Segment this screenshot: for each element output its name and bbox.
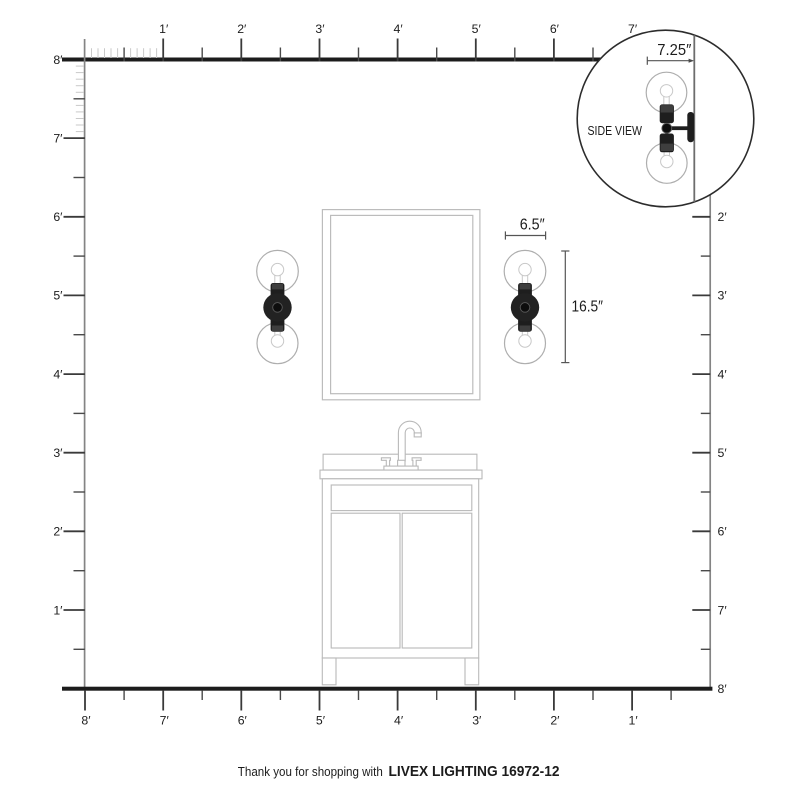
svg-text:7′: 7′ [160,714,170,728]
svg-text:7′: 7′ [628,22,638,36]
svg-text:8′: 8′ [718,682,728,696]
svg-text:2′: 2′ [53,525,63,539]
svg-text:4′: 4′ [394,22,404,36]
svg-text:6.5″: 6.5″ [520,217,545,234]
svg-text:3′: 3′ [472,714,482,728]
svg-text:6′: 6′ [53,210,63,224]
svg-text:16.5″: 16.5″ [572,299,604,316]
svg-text:3′: 3′ [718,289,728,303]
svg-text:4′: 4′ [394,714,404,728]
svg-text:3′: 3′ [315,22,325,36]
svg-text:Thank you for shopping with: Thank you for shopping with [238,764,383,779]
svg-text:1′: 1′ [159,22,169,36]
svg-text:4′: 4′ [718,367,728,381]
svg-text:2′: 2′ [550,714,560,728]
svg-text:3′: 3′ [53,446,63,460]
svg-text:5′: 5′ [53,289,63,303]
svg-text:7′: 7′ [718,603,728,617]
svg-text:8′: 8′ [81,714,91,728]
svg-text:LIVEX LIGHTING 16972-12: LIVEX LIGHTING 16972-12 [389,764,560,780]
svg-text:6′: 6′ [718,525,728,539]
svg-text:5′: 5′ [316,714,326,728]
svg-text:2′: 2′ [718,210,728,224]
svg-text:5′: 5′ [718,446,728,460]
svg-text:7′: 7′ [53,131,63,145]
svg-text:5′: 5′ [472,22,482,36]
svg-text:6′: 6′ [238,714,248,728]
svg-text:SIDE VIEW: SIDE VIEW [588,123,643,138]
svg-text:2′: 2′ [237,22,247,36]
svg-text:4′: 4′ [53,367,63,381]
svg-text:1′: 1′ [53,603,63,617]
svg-text:8′: 8′ [53,53,63,67]
svg-text:1′: 1′ [629,714,639,728]
svg-text:7.25″: 7.25″ [657,42,691,59]
svg-text:6′: 6′ [550,22,560,36]
